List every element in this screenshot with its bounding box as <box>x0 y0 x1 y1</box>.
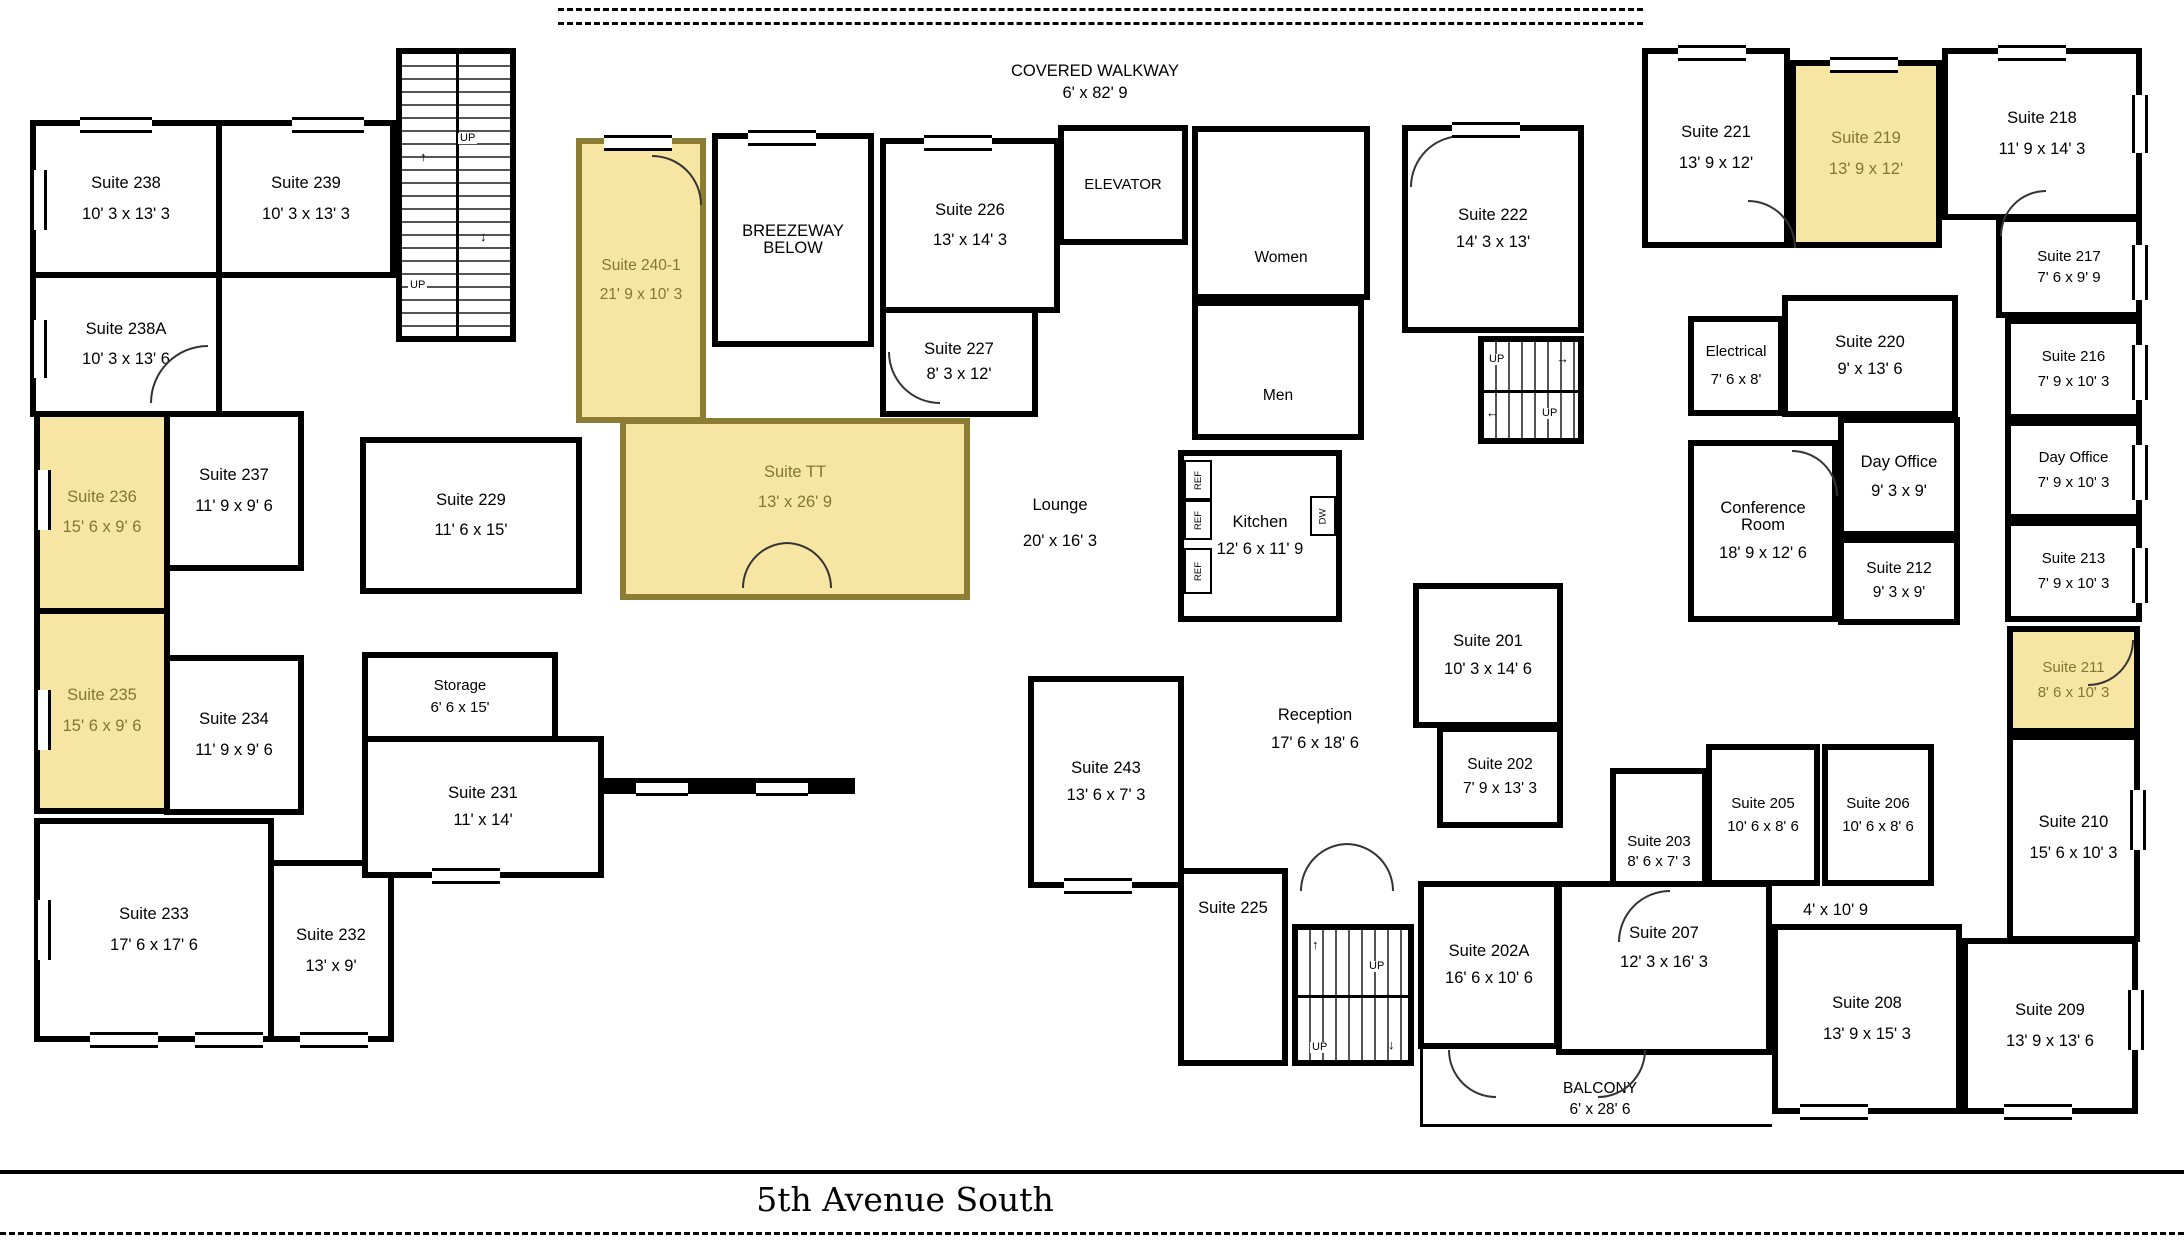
room-suite-209: Suite 209 13' 9 x 13' 6 <box>1962 938 2138 1114</box>
room-label: Suite 216 <box>2042 349 2105 365</box>
window <box>31 170 47 230</box>
stair-up-arrow: ↑ <box>420 150 427 163</box>
window <box>2132 245 2148 300</box>
room-suite-239: Suite 239 10' 3 x 13' 3 <box>216 120 396 278</box>
room-dims: 13' x 14' 3 <box>933 232 1007 249</box>
stair-divider <box>456 54 459 336</box>
window <box>35 900 51 960</box>
room-dims: 7' 6 x 9' 9 <box>2037 270 2100 286</box>
room-label: Lounge <box>1032 496 1087 514</box>
stair-up-arrow: ↑ <box>1312 938 1319 951</box>
room-suite-201: Suite 201 10' 3 x 14' 6 <box>1413 583 1563 728</box>
room-suite-243: Suite 243 13' 6 x 7' 3 <box>1028 676 1184 888</box>
room-label: Day Office <box>2039 450 2109 466</box>
room-label: Suite 219 <box>1831 130 1901 147</box>
refrigerator: REF <box>1184 460 1212 500</box>
reception-label: Reception 17' 6 x 18' 6 <box>1250 706 1380 752</box>
window <box>195 1032 263 1048</box>
room-dims: 13' 9 x 13' 6 <box>2006 1033 2094 1050</box>
restroom-men: Men <box>1192 300 1364 440</box>
room-dims: 10' 6 x 8' 6 <box>1842 819 1914 835</box>
room-dims: 10' 3 x 13' 3 <box>82 206 170 223</box>
window <box>2132 95 2148 153</box>
covered-walkway-dims: 6' x 82' 9 <box>1062 84 1127 102</box>
window <box>1998 45 2066 61</box>
room-day-office-west: Day Office 9' 3 x 9' <box>1838 417 1960 537</box>
room-suite-233: Suite 233 17' 6 x 17' 6 <box>34 818 274 1042</box>
room-dims: 13' 9 x 12' <box>1679 155 1753 172</box>
room-dims: 14' 3 x 13' <box>1456 234 1530 251</box>
window <box>2132 445 2148 500</box>
covered-walkway-label: COVERED WALKWAY 6' x 82' 9 <box>995 62 1195 102</box>
room-suite-225: Suite 225 <box>1178 868 1288 1066</box>
room-suite-210: Suite 210 15' 6 x 10' 3 <box>2007 734 2140 942</box>
room-storage: Storage 6' 6 x 15' <box>362 652 558 742</box>
room-label: Suite 234 <box>199 711 269 728</box>
room-label: Suite 239 <box>271 175 341 192</box>
window <box>31 320 47 378</box>
room-label: Suite 237 <box>199 467 269 484</box>
room-dims: 11' 9 x 14' 3 <box>1999 141 2086 158</box>
stair-up-label: UP <box>1540 408 1559 419</box>
covered-walkway-name: COVERED WALKWAY <box>1011 62 1179 80</box>
window <box>1452 122 1520 138</box>
room-label: Suite 222 <box>1458 207 1528 224</box>
lounge-label: Lounge 20' x 16' 3 <box>1000 496 1120 550</box>
room-suite-231: Suite 231 11' x 14' <box>362 736 604 878</box>
room-label: Suite 221 <box>1681 124 1751 141</box>
window <box>35 470 51 530</box>
balcony-rail <box>1420 1049 1423 1127</box>
dishwasher: DW <box>1310 496 1336 536</box>
door-arc <box>1346 843 1394 891</box>
staircase-northwest <box>396 48 516 342</box>
ref-label: REF <box>1193 511 1204 530</box>
covered-walkway-line-inner <box>558 22 1643 25</box>
room-dims: 13' 9 x 12' <box>1829 161 1903 178</box>
refrigerator: REF <box>1184 548 1212 594</box>
stair-up-label: UP <box>1310 1042 1329 1053</box>
room-day-office-east: Day Office 7' 9 x 10' 3 <box>2005 420 2142 520</box>
room-suite-238: Suite 238 10' 3 x 13' 3 <box>30 120 222 278</box>
window <box>35 690 51 750</box>
street-label: 5th Avenue South <box>655 1180 1155 1219</box>
room-suite-236: Suite 236 15' 6 x 9' 6 <box>34 411 170 614</box>
stair-down-arrow: ↓ <box>480 230 487 243</box>
window <box>756 780 808 796</box>
ref-label: REF <box>1193 471 1204 490</box>
room-label: Suite 217 <box>2037 249 2100 265</box>
room-label: Suite 202 <box>1467 757 1533 773</box>
room-label: Suite 231 <box>448 785 518 802</box>
window <box>2130 790 2146 850</box>
room-dims: 17' 6 x 17' 6 <box>110 937 198 954</box>
window <box>80 117 152 133</box>
room-dims: 13' x 9' <box>305 958 356 975</box>
window <box>924 135 992 151</box>
elevator-label: ELEVATOR <box>1084 177 1162 193</box>
room-dims: 8' 6 x 7' 3 <box>1627 854 1690 870</box>
window <box>90 1032 158 1048</box>
window <box>432 868 500 884</box>
restroom-women: Women <box>1192 126 1370 300</box>
ref-label: REF <box>1193 562 1204 581</box>
room-dims: 9' 3 x 9' <box>1873 585 1925 601</box>
room-label: Suite 210 <box>2039 814 2109 831</box>
room-dims: 7' 9 x 10' 3 <box>2038 475 2110 491</box>
room-dims: 11' x 14' <box>453 812 512 829</box>
room-suite-226: Suite 226 13' x 14' 3 <box>880 138 1060 313</box>
room-suite-229: Suite 229 11' 6 x 15' <box>360 437 582 594</box>
window <box>292 117 364 133</box>
room-suite-237: Suite 237 11' 9 x 9' 6 <box>164 411 304 571</box>
breezeway-label: BREEZEWAY BELOW <box>736 223 851 258</box>
window <box>1064 878 1132 894</box>
men-label: Men <box>1263 388 1293 404</box>
room-dims: 11' 6 x 15' <box>435 522 508 539</box>
street-dashed-line <box>0 1232 2184 1235</box>
window <box>2132 345 2148 400</box>
room-label: Suite 213 <box>2042 551 2105 567</box>
room-suite-234: Suite 234 11' 9 x 9' 6 <box>164 655 304 815</box>
room-label: Suite 212 <box>1866 561 1932 577</box>
room-dims: 13' 9 x 15' 3 <box>1823 1026 1911 1043</box>
room-suite-202: Suite 202 7' 9 x 13' 3 <box>1437 726 1563 828</box>
room-suite-213: Suite 213 7' 9 x 10' 3 <box>2005 520 2142 622</box>
room-dims: 18' 9 x 12' 6 <box>1719 545 1807 562</box>
stair-up-label: UP <box>1487 354 1506 365</box>
room-dims: 9' 3 x 9' <box>1871 483 1927 500</box>
room-suite-216: Suite 216 7' 9 x 10' 3 <box>2005 318 2142 420</box>
room-label: Suite 206 <box>1846 796 1909 812</box>
balcony-rail <box>1420 1124 1772 1127</box>
room-dims: 10' 6 x 8' 6 <box>1727 819 1799 835</box>
room-dims: 15' 6 x 10' 3 <box>2030 845 2118 862</box>
room-dims: 15' 6 x 9' 6 <box>63 519 142 536</box>
room-suite-205: Suite 205 10' 6 x 8' 6 <box>1706 744 1820 886</box>
room-dims: 11' 9 x 9' 6 <box>195 498 273 515</box>
door-arc <box>1300 843 1348 891</box>
street-line <box>0 1170 2184 1174</box>
balcony-dims: 6' x 28' 6 <box>1569 1101 1630 1118</box>
room-label: Suite 220 <box>1835 334 1905 351</box>
corridor-dims: 4' x 10' 9 <box>1803 901 1868 919</box>
room-label: Suite 233 <box>119 906 189 923</box>
room-label: Suite 232 <box>296 927 366 944</box>
room-suite-220: Suite 220 9' x 13' 6 <box>1782 295 1958 417</box>
room-label: Electrical <box>1706 344 1767 360</box>
room-label: Suite 209 <box>2015 1002 2085 1019</box>
window <box>748 130 816 146</box>
stair-up-label: UP <box>408 280 427 291</box>
room-dims: 7' 6 x 8' <box>1711 372 1762 388</box>
room-label: Suite 225 <box>1198 900 1268 917</box>
room-suite-202a: Suite 202A 16' 6 x 10' 6 <box>1418 881 1560 1049</box>
room-label: Suite 238A <box>86 321 167 338</box>
room-label: Suite 208 <box>1832 995 1902 1012</box>
room-dims: 21' 9 x 10' 3 <box>600 287 683 303</box>
room-dims: 16' 6 x 10' 6 <box>1445 970 1533 987</box>
room-dims: 10' 3 x 13' 3 <box>262 206 350 223</box>
refrigerator: REF <box>1184 500 1212 540</box>
room-dims: 13' 6 x 7' 3 <box>1067 787 1146 804</box>
door-arc <box>1448 1050 1496 1098</box>
room-label: Suite 201 <box>1453 633 1523 650</box>
room-dims: 12' 6 x 11' 9 <box>1217 541 1304 558</box>
corridor-dims-label: 4' x 10' 9 <box>1788 901 1883 919</box>
room-label: Suite 205 <box>1731 796 1794 812</box>
room-suite-212: Suite 212 9' 3 x 9' <box>1838 537 1960 625</box>
room-label: Suite 229 <box>436 492 506 509</box>
room-dims: 8' 6 x 10' 3 <box>2038 685 2110 701</box>
room-dims: 17' 6 x 18' 6 <box>1271 734 1359 752</box>
room-label: Day Office <box>1861 454 1938 471</box>
stair-left-arrow: ← <box>1486 406 1499 419</box>
room-dims: 20' x 16' 3 <box>1023 532 1097 550</box>
room-suite-208: Suite 208 13' 9 x 15' 3 <box>1772 924 1962 1114</box>
room-suite-235: Suite 235 15' 6 x 9' 6 <box>34 608 170 814</box>
room-label: Suite 203 <box>1627 834 1690 850</box>
room-dims: 15' 6 x 9' 6 <box>63 718 142 735</box>
stair-divider <box>1484 390 1578 393</box>
room-label: Storage <box>434 678 487 694</box>
room-dims: 9' x 13' 6 <box>1837 361 1902 378</box>
room-dims: 13' x 26' 9 <box>758 494 832 511</box>
window <box>1830 57 1898 73</box>
elevator: ELEVATOR <box>1058 125 1188 245</box>
stair-right-arrow: → <box>1556 352 1569 365</box>
room-suite-219: Suite 219 13' 9 x 12' <box>1790 60 1942 248</box>
room-label: Suite 243 <box>1071 760 1141 777</box>
covered-walkway-line-outer <box>558 8 1643 11</box>
room-label: Reception <box>1278 706 1352 724</box>
room-dims: 10' 3 x 13' 6 <box>82 351 170 368</box>
window <box>1678 45 1746 61</box>
stair-down-arrow: ↓ <box>1388 1038 1395 1051</box>
floor-plan: COVERED WALKWAY 6' x 82' 9 Suite 238 10'… <box>0 0 2184 1252</box>
room-dims: 7' 9 x 10' 3 <box>2038 576 2110 592</box>
window <box>604 135 672 151</box>
room-label: Suite 240-1 <box>601 258 680 274</box>
room-label: Kitchen <box>1232 514 1287 531</box>
window <box>300 1032 368 1048</box>
window <box>1800 1104 1868 1120</box>
room-label: Suite TT <box>764 464 826 481</box>
room-dims: 12' 3 x 16' 3 <box>1620 954 1708 971</box>
window <box>2004 1104 2072 1120</box>
room-label: Conference Room <box>1704 500 1822 535</box>
window <box>636 780 688 796</box>
room-dims: 6' 6 x 15' <box>430 700 489 716</box>
room-label: Suite 238 <box>91 175 161 192</box>
room-dims: 10' 3 x 14' 6 <box>1444 661 1532 678</box>
women-label: Women <box>1254 250 1307 266</box>
room-suite-232: Suite 232 13' x 9' <box>268 860 394 1042</box>
street-name: 5th Avenue South <box>756 1180 1053 1219</box>
room-label: Suite 236 <box>67 489 137 506</box>
window <box>2132 548 2148 603</box>
dw-label: DW <box>1317 508 1328 524</box>
room-suite-206: Suite 206 10' 6 x 8' 6 <box>1822 744 1934 886</box>
window <box>2128 990 2144 1050</box>
room-electrical: Electrical 7' 6 x 8' <box>1688 316 1784 416</box>
stair-up-label: UP <box>458 133 477 144</box>
breezeway-below: BREEZEWAY BELOW <box>712 133 874 347</box>
room-dims: 7' 9 x 10' 3 <box>2038 374 2110 390</box>
room-label: Suite 202A <box>1449 943 1530 960</box>
room-label: Suite 218 <box>2007 110 2077 127</box>
room-dims: 7' 9 x 13' 3 <box>1463 781 1537 797</box>
room-dims: 11' 9 x 9' 6 <box>195 742 273 759</box>
room-label: Suite 226 <box>935 202 1005 219</box>
stair-divider <box>1298 995 1408 998</box>
stair-up-label: UP <box>1367 961 1386 972</box>
room-label: Suite 235 <box>67 687 137 704</box>
